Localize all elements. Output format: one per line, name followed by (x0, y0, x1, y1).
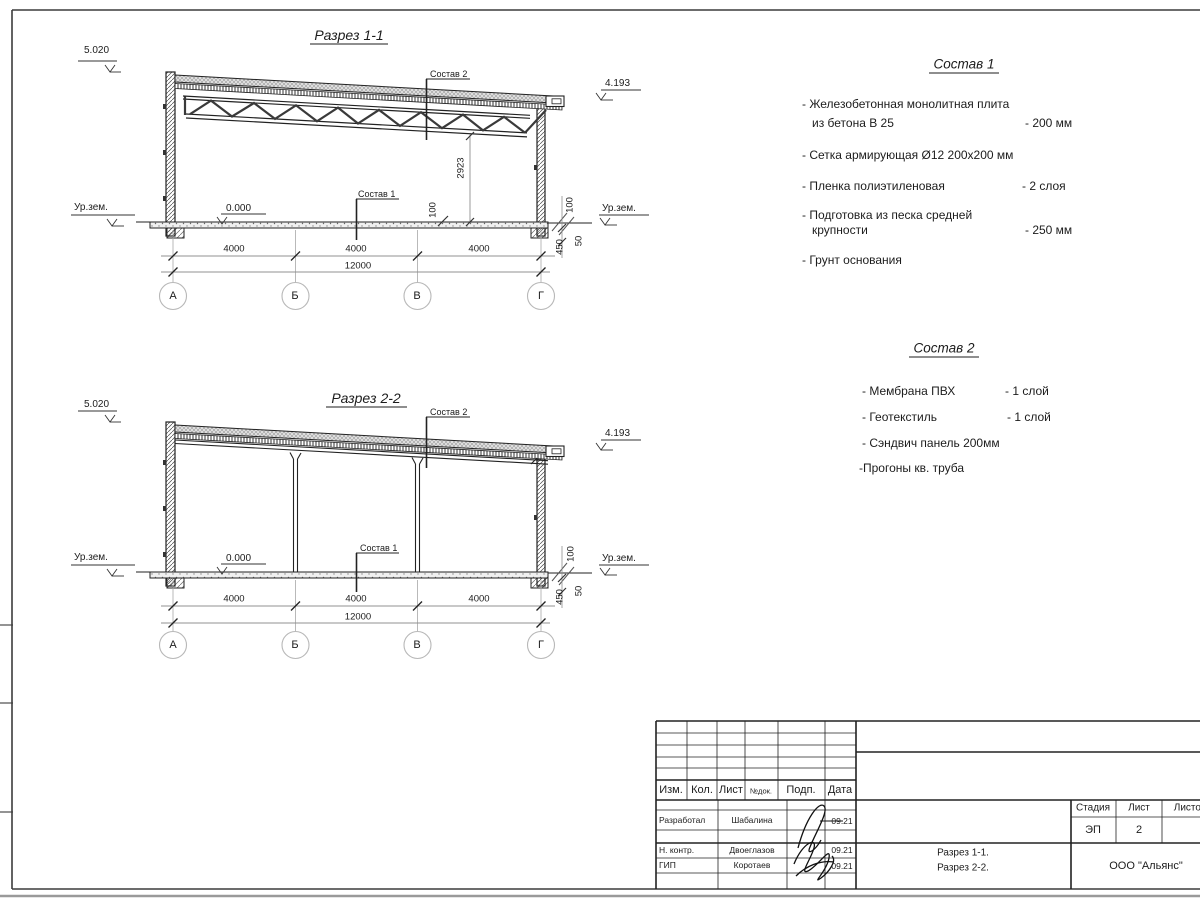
sostav1-item4-value: - 250 мм (1025, 223, 1072, 237)
section2-axis-v: В (413, 639, 420, 651)
section2-dim-span1: 4000 (223, 594, 244, 605)
section1-dim-50: 50 (574, 236, 585, 247)
titleblock-date-ncontrol: 09.21 (831, 845, 852, 855)
section2-dim-span3: 4000 (468, 594, 489, 605)
section1-ground-label-left: Ур.зем. (74, 202, 108, 213)
section1-leader-roof-label: Состав 2 (430, 69, 467, 79)
section2-dim-50: 50 (574, 586, 585, 597)
section1-dim-span3: 4000 (468, 244, 489, 255)
titleblock-list-value: 2 (1136, 824, 1142, 836)
titleblock-date-gip: 09.21 (831, 861, 852, 871)
signature-2 (794, 842, 834, 880)
section1-elev-top-left: 5.020 (84, 45, 109, 56)
sostav1-title: Состав 1 (934, 57, 995, 72)
sostav2-item1-line1: - Мембрана ПВХ (862, 384, 955, 398)
frame-fold-ticks (0, 625, 13, 812)
sostav1-item1-line2: из бетона В 25 (812, 116, 894, 130)
section2-dim-total: 12000 (345, 612, 371, 623)
sostav2-title: Состав 2 (914, 341, 975, 356)
titleblock-listov-label: Листов (1174, 803, 1200, 814)
sostav1-item1-line1: - Железобетонная монолитная плита (802, 97, 1009, 111)
titleblock-date-developed: 09.21 (831, 816, 852, 826)
section1-dim-2923: 2923 (456, 157, 467, 178)
section2-axis-g: Г (538, 639, 544, 651)
section1-axis-b: Б (291, 290, 298, 302)
sheet-frame (12, 10, 1200, 889)
section2-axis-b: Б (291, 639, 298, 651)
titleblock-stage-value: ЭП (1085, 824, 1101, 836)
sostav2-item2-value: - 1 слой (1007, 410, 1051, 424)
titleblock-col-podp: Подп. (786, 784, 815, 796)
section2-leader-roof-label: Состав 2 (430, 407, 467, 417)
drawing-sheet: Разрез 1-1 5.020 4.193 Ур.зем. Ур.зем. 0… (0, 0, 1200, 900)
drawing-geometry (0, 0, 1200, 900)
section2-axis-a: А (169, 639, 176, 651)
section1-dim-span2: 4000 (345, 244, 366, 255)
section1-dim-100-mid: 100 (428, 202, 439, 218)
titleblock-name-developed: Шабалина (731, 815, 772, 825)
section2-ground-label-left: Ур.зем. (74, 552, 108, 563)
section1-axis-a: А (169, 290, 176, 302)
sostav2-item4-line1: -Прогоны кв. труба (859, 461, 964, 475)
titleblock-stage-label: Стадия (1076, 803, 1110, 814)
section1-dim-span1: 4000 (223, 244, 244, 255)
section1-dim-450: 450 (555, 239, 566, 255)
section1-elev-top-right: 4.193 (605, 78, 630, 89)
sostav1-item2-line1: - Сетка армирующая Ø12 200х200 мм (802, 148, 1013, 162)
section1-leader-floor-label: Состав 1 (358, 189, 395, 199)
titleblock-col-izm: Изм. (659, 784, 683, 796)
section2-dim-span2: 4000 (345, 594, 366, 605)
titleblock-role-developed: Разработал (659, 815, 705, 825)
sostav1-item3-line1: - Пленка полиэтиленовая (802, 179, 945, 193)
titleblock-org: ООО "Альянс" (1109, 860, 1183, 872)
section2-elev-top-left: 5.020 (84, 399, 109, 410)
titleblock-name-gip: Коротаев (734, 860, 771, 870)
titleblock-list-label: Лист (1128, 803, 1150, 814)
sostav2-item2-line1: - Геотекстиль (862, 410, 937, 424)
section2-dim-100-right: 100 (566, 546, 577, 562)
section1-elev-zero: 0.000 (226, 203, 251, 214)
section1-dim-total: 12000 (345, 261, 371, 272)
sostav1-item3-value: - 2 слоя (1022, 179, 1066, 193)
titleblock-col-list: Лист (719, 784, 743, 796)
sostav1-item5-line1: - Грунт основания (802, 253, 902, 267)
sostav1-item4-line1: - Подготовка из песка средней (802, 208, 972, 222)
section2-ground-label-right: Ур.зем. (602, 553, 636, 564)
section1-ground-label-right: Ур.зем. (602, 203, 636, 214)
titleblock-col-ndok: №док. (750, 787, 772, 796)
sostav1-item4-line2: крупности (812, 223, 868, 237)
section2-elev-zero: 0.000 (226, 553, 251, 564)
sostav1-item1-value: - 200 мм (1025, 116, 1072, 130)
sostav2-item3-line1: - Сэндвич панель 200мм (862, 436, 1000, 450)
titleblock-col-kol: Кол. (691, 784, 713, 796)
section2-dim-450: 450 (555, 589, 566, 605)
sostav2-item1-value: - 1 слой (1005, 384, 1049, 398)
titleblock-doc-line1: Разрез 1-1. (937, 848, 989, 859)
titleblock-col-data: Дата (828, 784, 852, 796)
titleblock-name-ncontrol: Двоеглазов (729, 845, 774, 855)
titleblock-doc-line2: Разрез 2-2. (937, 863, 989, 874)
section1-title: Разрез 1-1 (314, 27, 383, 43)
section1-dim-100-right: 100 (565, 197, 576, 213)
section2-leader-floor-label: Состав 1 (360, 543, 397, 553)
section2-elev-top-right: 4.193 (605, 428, 630, 439)
section1-axis-g: Г (538, 290, 544, 302)
section1-axis-v: В (413, 290, 420, 302)
section2-title: Разрез 2-2 (331, 390, 400, 406)
titleblock-role-gip: ГИП (659, 860, 676, 870)
titleblock-role-ncontrol: Н. контр. (659, 845, 694, 855)
